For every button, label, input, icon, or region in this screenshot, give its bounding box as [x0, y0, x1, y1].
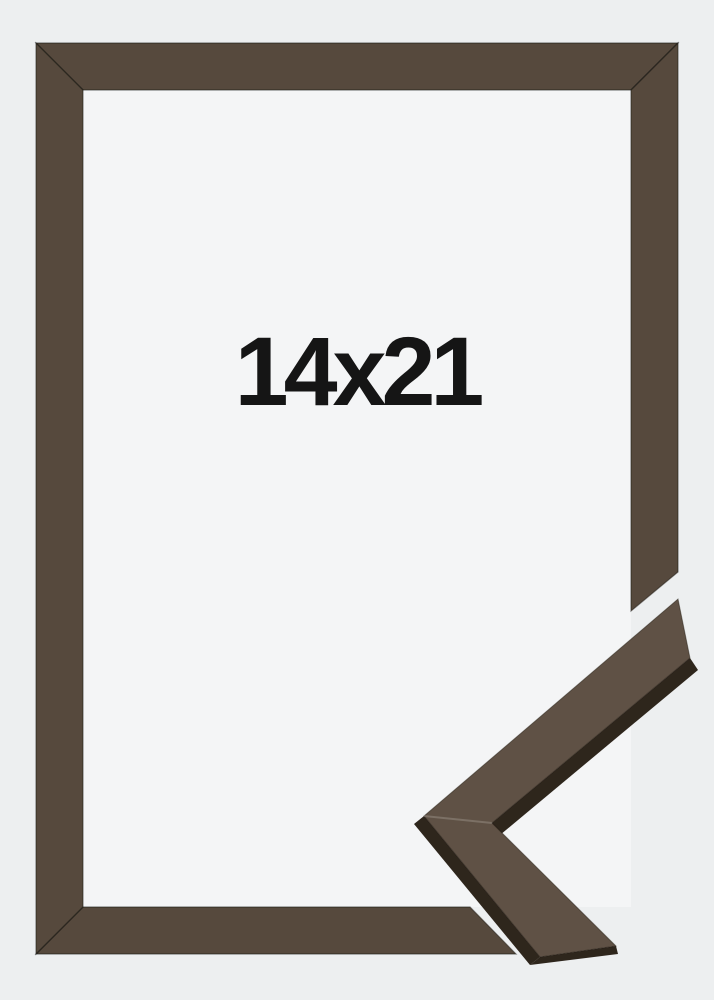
- frame-top-bar: [36, 43, 678, 90]
- size-label: 14x21: [83, 323, 631, 420]
- frame-right-bar: [631, 43, 678, 611]
- product-photo: 14x21: [0, 0, 714, 1000]
- frame-left-bar: [36, 43, 83, 954]
- frame-bottom-bar: [36, 907, 516, 954]
- frame-product-image: [0, 0, 714, 1000]
